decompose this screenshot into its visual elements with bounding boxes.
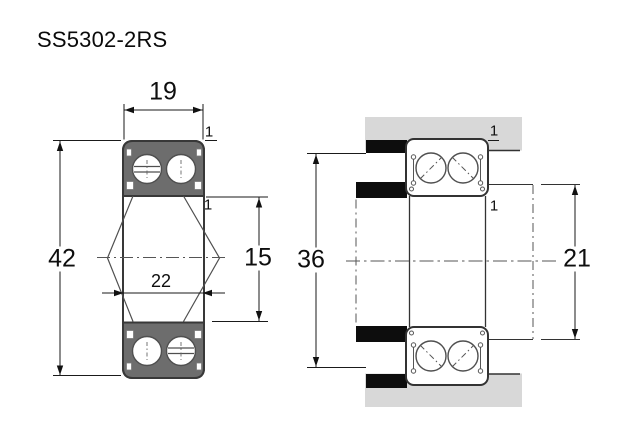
shoulder-blocks [356, 140, 407, 388]
ball-icon [133, 155, 162, 184]
ball-icon [167, 337, 196, 366]
reference-centerlines [356, 185, 533, 339]
technical-drawing [0, 0, 640, 440]
chamfer-label-outer-left-view: 1 [205, 125, 213, 140]
arrowhead [313, 357, 319, 367]
ball-icon [167, 155, 196, 184]
arrowhead [57, 366, 63, 376]
page-title: SS5302-2RS [37, 29, 167, 51]
cross-section-view [53, 104, 268, 378]
arrowhead [572, 329, 578, 339]
dim-label-width: 19 [146, 80, 180, 105]
dimension-width-19 [124, 104, 203, 140]
arrowhead [572, 186, 578, 196]
mounting-view [307, 117, 580, 407]
arrowhead [256, 198, 262, 208]
dim-label-housing-abutment: 36 [294, 248, 328, 273]
chamfer-label-outer-right-view: 1 [490, 124, 498, 139]
arrowhead [313, 155, 319, 165]
dim-label-outer-diameter: 42 [45, 247, 79, 272]
dim-label-shaft-abutment: 21 [560, 247, 594, 272]
bearing-drawing-page: SS5302-2RS 19 42 15 22 1 1 36 21 1 1 [0, 0, 640, 440]
arrowhead [193, 107, 203, 113]
arrowhead [125, 107, 135, 113]
dim-label-inner-ring: 22 [151, 272, 171, 290]
arrowhead [57, 142, 63, 152]
dim-label-bore: 15 [241, 246, 275, 271]
ball-icon [133, 337, 162, 366]
arrowhead [256, 311, 262, 321]
chamfer-label-inner-right-view: 1 [490, 199, 498, 214]
chamfer-label-inner-left-view: 1 [204, 198, 212, 213]
